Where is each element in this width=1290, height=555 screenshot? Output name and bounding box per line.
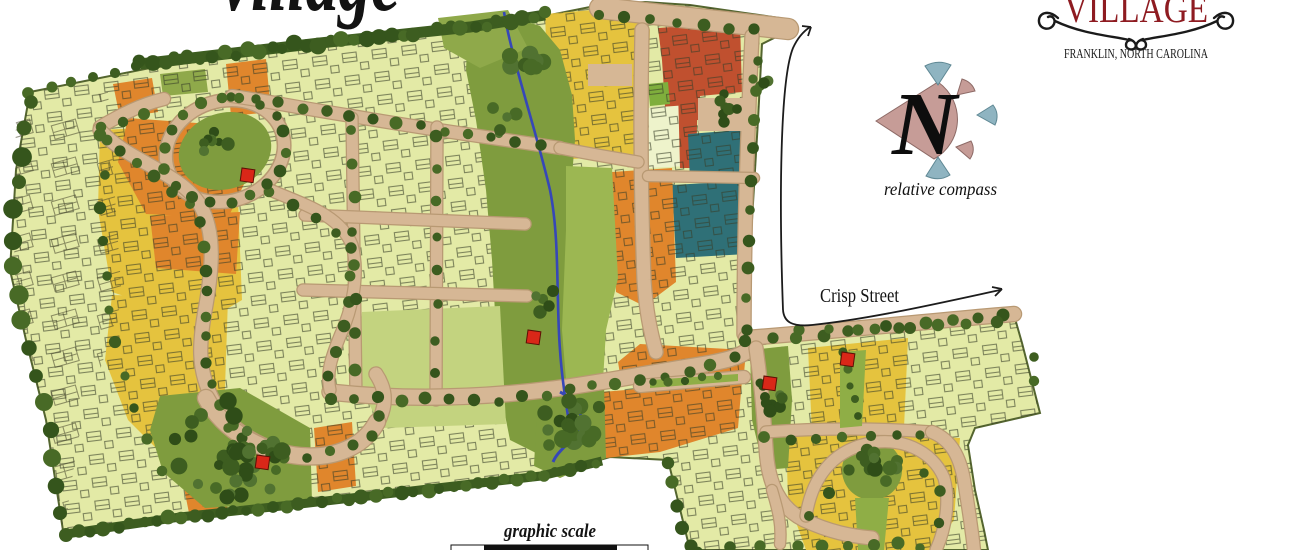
svg-text:Crisp Street: Crisp Street <box>820 285 899 307</box>
svg-text:N: N <box>891 75 960 174</box>
svg-text:graphic scale: graphic scale <box>503 521 596 542</box>
svg-text:VILLAGE: VILLAGE <box>1064 0 1208 31</box>
svg-text:village: village <box>222 0 400 30</box>
svg-text:FRANKLIN, NORTH CAROLINA: FRANKLIN, NORTH CAROLINA <box>1064 46 1208 61</box>
svg-text:relative compass: relative compass <box>884 179 997 199</box>
